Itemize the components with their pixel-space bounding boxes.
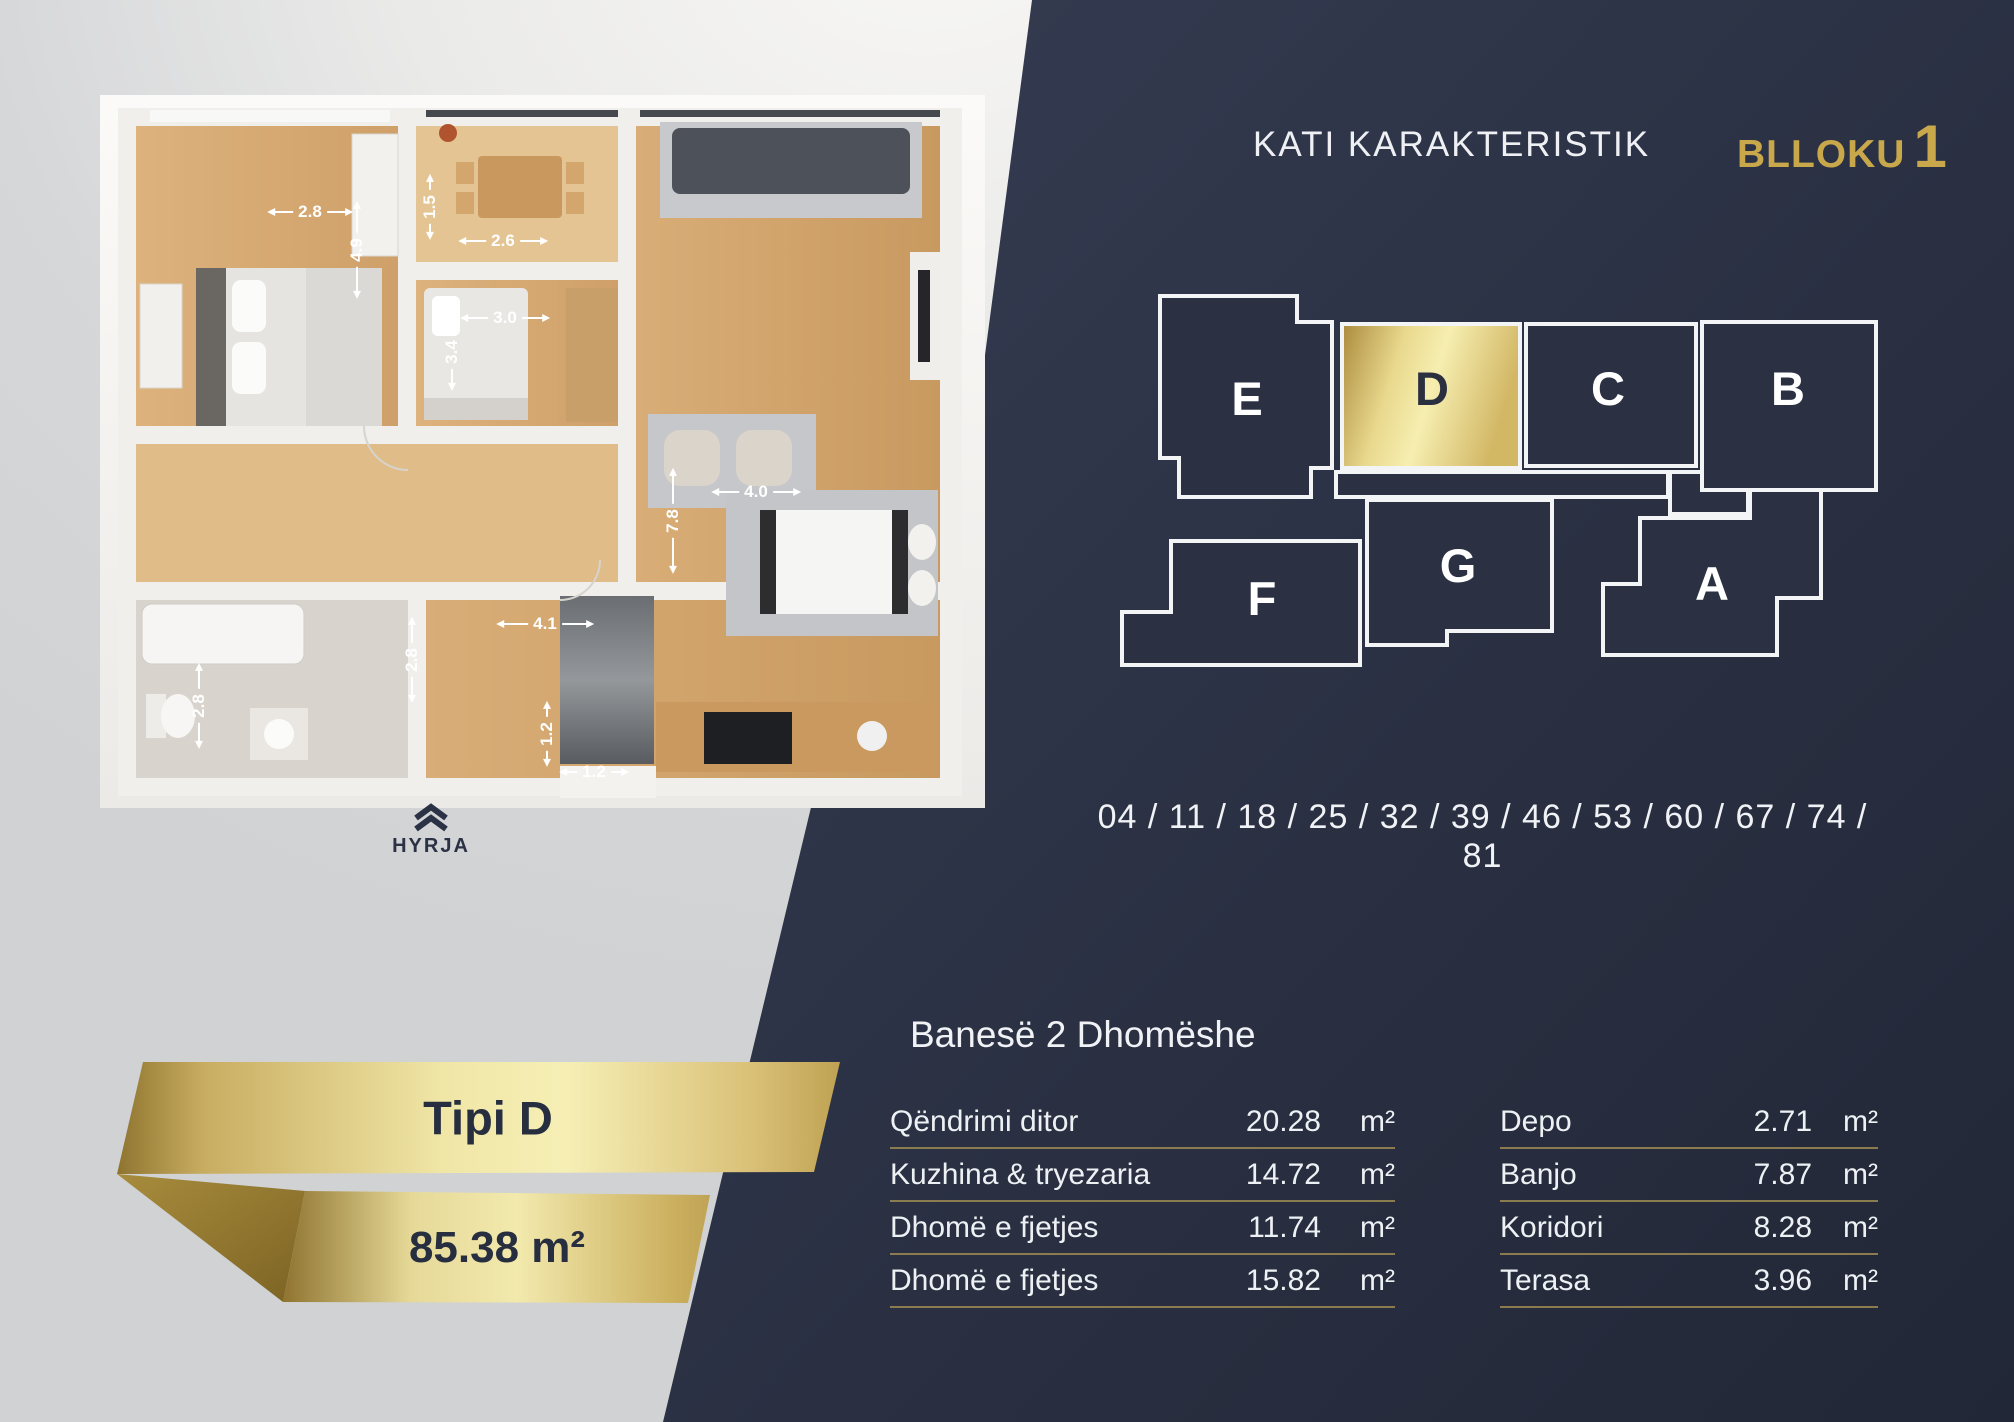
sofa <box>672 128 910 194</box>
room-name: Dhomë e fjetjes <box>890 1211 1203 1245</box>
dim-arrow-right <box>672 470 674 504</box>
dim-value: 4.0 <box>744 482 768 502</box>
master-headboard <box>196 268 226 426</box>
wardrobe <box>566 288 618 422</box>
dimension-label: 2.6 <box>460 231 546 251</box>
dimension-label: 7.8 <box>663 470 683 572</box>
area-row: Banjo7.87m² <box>1500 1149 1878 1202</box>
dimension-label: 2.8 <box>189 665 209 747</box>
area-unit: m² <box>1812 1211 1878 1245</box>
dim-arrow-left <box>713 491 739 493</box>
brochure-page: HYRJA EDCBFGA KATI KARAKTERISTIK BLLOKU … <box>0 0 2014 1422</box>
dim-value: 4.1 <box>533 614 557 634</box>
dim-arrow-left <box>356 267 358 297</box>
dim-arrow-right <box>562 623 592 625</box>
room-area-value: 3.96 <box>1708 1264 1812 1298</box>
table-end <box>892 510 908 614</box>
dimension-label: 4.9 <box>347 203 367 297</box>
bathtub <box>142 604 304 664</box>
dim-arrow-right <box>356 203 358 233</box>
area-unit: m² <box>1321 1211 1395 1245</box>
chair <box>566 162 584 184</box>
room-name: Kuzhina & tryezaria <box>890 1158 1203 1192</box>
dimension-label: 4.0 <box>713 482 799 502</box>
dimension-label: 1.2 <box>537 703 557 765</box>
area-unit: m² <box>1812 1105 1878 1139</box>
area-table-left: Qëndrimi ditor20.28m²Kuzhina & tryezaria… <box>890 1096 1395 1308</box>
dim-arrow-right <box>198 665 200 689</box>
dimension-label: 3.4 <box>442 315 462 389</box>
dim-arrow-left <box>451 369 453 389</box>
duvet <box>306 268 382 426</box>
dim-arrow-left <box>411 677 413 701</box>
unit-letter-e: E <box>1231 372 1262 425</box>
pillow <box>232 280 266 332</box>
room-area-value: 15.82 <box>1203 1264 1321 1298</box>
apartment-type-label: Tipi D <box>423 1091 553 1146</box>
block-diagram <box>1122 296 1876 665</box>
room-name: Banjo <box>1500 1158 1708 1192</box>
unit-letter-c: C <box>1591 362 1625 415</box>
dim-value: 1.5 <box>420 195 440 219</box>
dim-value: 3.4 <box>442 340 462 364</box>
armchair <box>736 430 792 486</box>
dim-arrow-left <box>498 623 528 625</box>
living-rail <box>640 110 940 117</box>
dim-arrow-left <box>672 538 674 572</box>
kitchen-sink <box>857 721 887 751</box>
room-name: Dhomë e fjetjes <box>890 1264 1203 1298</box>
dim-arrow-right <box>773 491 799 493</box>
dining-table <box>760 510 908 614</box>
room-area-value: 2.71 <box>1708 1105 1812 1139</box>
dim-arrow-right <box>520 240 546 242</box>
room-area-value: 8.28 <box>1708 1211 1812 1245</box>
unit-letter-b: B <box>1771 362 1805 415</box>
block-number: 1 <box>1913 112 1946 181</box>
area-row: Koridori8.28m² <box>1500 1202 1878 1255</box>
dim-arrow-right <box>546 703 548 717</box>
dim-arrow-right <box>411 619 413 643</box>
area-row: Kuzhina & tryezaria14.72m² <box>890 1149 1395 1202</box>
room-name: Koridori <box>1500 1211 1708 1245</box>
dim-value: 2.8 <box>189 694 209 718</box>
room-area-value: 7.87 <box>1708 1158 1812 1192</box>
bed-foot <box>424 398 528 420</box>
tv <box>918 270 930 362</box>
dim-arrow-left <box>269 211 293 213</box>
entrance-marker: HYRJA <box>392 807 470 857</box>
dim-value: 2.6 <box>491 231 515 251</box>
dim-value: 2.8 <box>402 648 422 672</box>
dim-arrow-right <box>522 317 548 319</box>
block-label: BLLOKU <box>1737 133 1905 177</box>
room-name: Terasa <box>1500 1264 1708 1298</box>
dim-value: 7.8 <box>663 509 683 533</box>
table-end <box>760 510 776 614</box>
dim-arrow-left <box>546 751 548 765</box>
dimension-label: 4.1 <box>498 614 592 634</box>
unit-letter-d: D <box>1415 362 1449 415</box>
dim-value: 1.2 <box>537 722 557 746</box>
area-row: Depo2.71m² <box>1500 1096 1878 1149</box>
unit-letter-f: F <box>1248 572 1277 625</box>
dim-arrow-left <box>561 771 577 773</box>
area-unit: m² <box>1321 1105 1395 1139</box>
corridor-floor <box>136 444 618 582</box>
kitchen-counter <box>656 702 940 772</box>
dim-arrow-right <box>429 176 431 190</box>
balcony-rail <box>426 110 618 117</box>
dim-value: 2.8 <box>298 202 322 222</box>
unit-numbers-row: 04 / 11 / 18 / 25 / 32 / 39 / 46 / 53 / … <box>1075 798 1890 876</box>
unit-letter-g: G <box>1440 539 1477 592</box>
apartment-total-area: 85.38 m² <box>409 1223 585 1273</box>
chair <box>566 192 584 214</box>
plant <box>439 124 457 142</box>
area-unit: m² <box>1812 1158 1878 1192</box>
area-row: Dhomë e fjetjes11.74m² <box>890 1202 1395 1255</box>
dim-value: 1.2 <box>582 762 606 782</box>
pillow <box>232 342 266 394</box>
chair <box>456 162 474 184</box>
dim-value: 3.0 <box>493 308 517 328</box>
dim-arrow-right <box>451 315 453 335</box>
corridor-shape <box>1336 472 1668 497</box>
page-title: KATI KARAKTERISTIK <box>1253 125 1650 165</box>
stove <box>704 712 792 764</box>
chevron-up-icon <box>416 818 446 829</box>
dimension-label: 2.8 <box>269 202 351 222</box>
dim-arrow-right <box>611 771 627 773</box>
dim-arrow-left <box>462 317 488 319</box>
area-row: Qëndrimi ditor20.28m² <box>890 1096 1395 1149</box>
ribbon-fold <box>117 1174 305 1302</box>
area-unit: m² <box>1321 1158 1395 1192</box>
window-master <box>150 110 390 122</box>
area-row: Dhomë e fjetjes15.82m² <box>890 1255 1395 1308</box>
dim-arrow-left <box>429 224 431 238</box>
room-area-value: 11.74 <box>1203 1211 1321 1245</box>
dimension-label: 1.5 <box>420 176 440 238</box>
entrance-label: HYRJA <box>392 835 470 857</box>
room-name: Qëndrimi ditor <box>890 1105 1203 1139</box>
dim-arrow-left <box>198 723 200 747</box>
apartment-heading: Banesë 2 Dhomëshe <box>910 1014 1256 1056</box>
room-area-value: 20.28 <box>1203 1105 1321 1139</box>
dimension-label: 1.2 <box>561 762 627 782</box>
dimension-label: 3.0 <box>462 308 548 328</box>
chair <box>908 524 936 560</box>
area-table-right: Depo2.71m²Banjo7.87m²Koridori8.28m²Teras… <box>1500 1096 1878 1308</box>
chair <box>908 570 936 606</box>
block-badge: BLLOKU 1 <box>1737 112 1947 181</box>
dimension-label: 2.8 <box>402 619 422 701</box>
dim-value: 4.9 <box>347 238 367 262</box>
room-name: Depo <box>1500 1105 1708 1139</box>
area-row: Terasa3.96m² <box>1500 1255 1878 1308</box>
unit-letter-a: A <box>1695 557 1729 610</box>
dresser <box>140 284 182 388</box>
area-unit: m² <box>1321 1264 1395 1298</box>
nook-table <box>478 156 562 218</box>
chair <box>456 192 474 214</box>
room-area-value: 14.72 <box>1203 1158 1321 1192</box>
dim-arrow-left <box>460 240 486 242</box>
sink <box>264 719 294 749</box>
area-unit: m² <box>1812 1264 1878 1298</box>
